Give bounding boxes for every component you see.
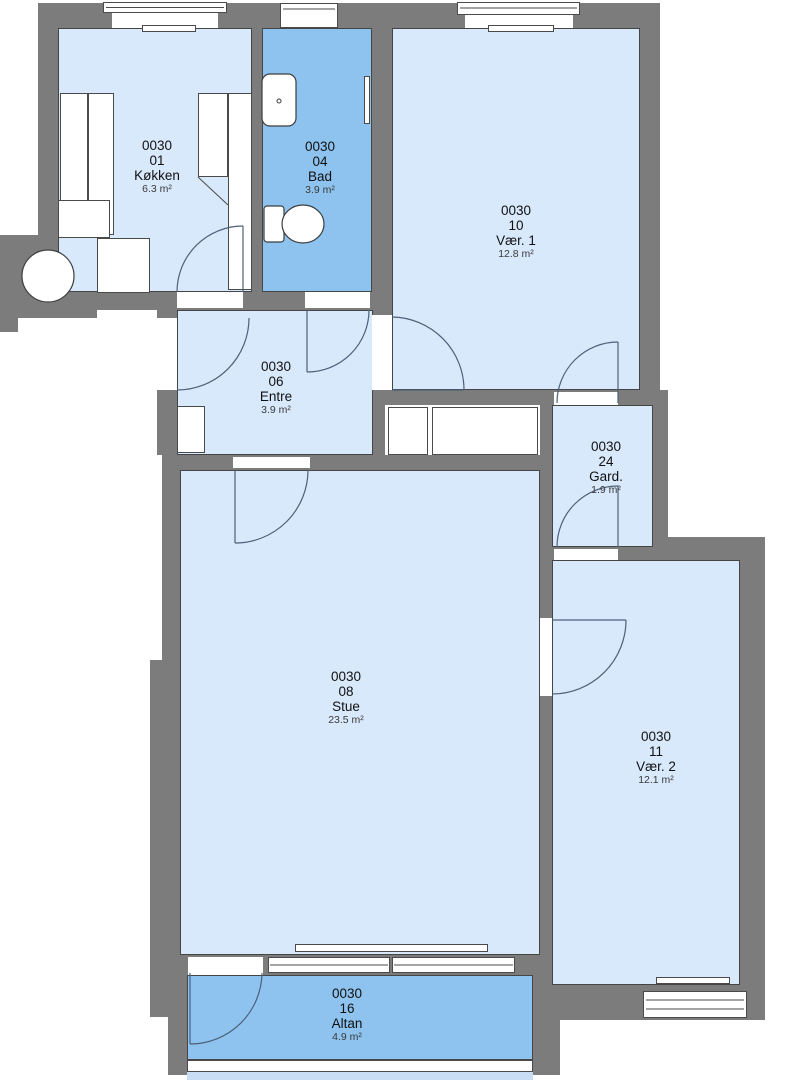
room-area: 23.5 m² — [328, 715, 364, 727]
room-code: 0030 — [496, 203, 536, 218]
closet — [432, 407, 538, 455]
mirror-bad — [364, 76, 370, 124]
room-number: 01 — [134, 153, 180, 168]
room-code: 0030 — [589, 439, 623, 454]
wall — [373, 400, 385, 458]
room-code: 0030 — [332, 986, 363, 1001]
door-opening-gard-top — [554, 392, 618, 405]
room-name: Entre — [260, 389, 292, 404]
room-code: 0030 — [328, 669, 364, 684]
door-opening-vaer1 — [372, 315, 392, 390]
room-label-stue: 0030 08 Stue 23.5 m² — [328, 669, 364, 727]
door-opening-vaer2 — [540, 618, 552, 696]
balcony-railing — [187, 1060, 533, 1072]
wall — [740, 537, 765, 1020]
room-label-vaer2: 0030 11 Vær. 2 12.1 m² — [636, 729, 676, 787]
room-label-entre: 0030 06 Entre 3.9 m² — [260, 359, 292, 417]
room-number: 24 — [589, 454, 623, 469]
room-number: 04 — [305, 154, 335, 169]
room-code: 0030 — [260, 359, 292, 374]
door-opening-bad — [305, 292, 370, 308]
room-area: 6.3 m² — [134, 184, 180, 196]
radiator-koekken — [142, 25, 196, 32]
radiator-stue — [295, 944, 488, 952]
room-name: Bad — [305, 169, 335, 184]
room-name: Altan — [332, 1016, 363, 1031]
room-name: Stue — [328, 699, 364, 714]
room-name: Gard. — [589, 469, 623, 484]
wall — [162, 455, 552, 470]
window-vaer2 — [643, 991, 747, 1018]
door-opening-entrance — [157, 318, 177, 390]
balcony-edge — [187, 1072, 533, 1080]
room-name: Vær. 1 — [496, 233, 536, 248]
floor-plan: 0030 01 Køkken 6.3 m² 0030 04 Bad 3.9 m²… — [0, 0, 800, 1080]
room-number: 08 — [328, 684, 364, 699]
window-stue-right — [392, 957, 515, 973]
room-area: 12.8 m² — [496, 249, 536, 261]
wall — [252, 28, 262, 292]
door-opening-altan — [188, 957, 263, 975]
window-stue-left — [268, 957, 390, 973]
room-label-gard: 0030 24 Gard. 1.9 m² — [589, 439, 623, 497]
wall — [392, 390, 660, 405]
room-label-bad: 0030 04 Bad 3.9 m² — [305, 139, 335, 197]
window-vaer1 — [457, 2, 580, 15]
wall — [162, 470, 180, 670]
closet — [388, 407, 428, 455]
room-number: 11 — [636, 744, 676, 759]
wall — [168, 1017, 187, 1075]
room-name: Køkken — [134, 168, 180, 183]
wall — [640, 28, 660, 405]
room-area: 3.9 m² — [260, 405, 292, 417]
room-area: 4.9 m² — [332, 1032, 363, 1044]
room-name: Vær. 2 — [636, 759, 676, 774]
radiator-vaer2 — [656, 977, 730, 984]
room-label-vaer1: 0030 10 Vær. 1 12.8 m² — [496, 203, 536, 261]
room-label-koekken: 0030 01 Køkken 6.3 m² — [134, 138, 180, 196]
room-area: 3.9 m² — [305, 185, 335, 197]
room-number: 10 — [496, 218, 536, 233]
room-code: 0030 — [305, 139, 335, 154]
kitchen-counter — [58, 200, 110, 238]
door-opening-gard-bottom — [554, 549, 618, 560]
room-area: 1.9 m² — [589, 485, 623, 497]
room-code: 0030 — [134, 138, 180, 153]
wall — [38, 3, 60, 240]
kitchen-counter — [97, 238, 150, 293]
radiator-vaer1 — [488, 25, 554, 32]
door-opening-koekken — [177, 292, 243, 308]
room-code: 0030 — [636, 729, 676, 744]
room-number: 06 — [260, 374, 292, 389]
room-label-altan: 0030 16 Altan 4.9 m² — [332, 986, 363, 1044]
vent-shaft-bad — [280, 3, 338, 28]
room-area: 12.1 m² — [636, 775, 676, 787]
kitchen-counter — [228, 93, 252, 290]
kitchen-counter — [198, 93, 228, 177]
room-number: 16 — [332, 1001, 363, 1016]
wall — [653, 390, 668, 560]
window-koekken — [103, 2, 227, 13]
closet — [177, 406, 205, 453]
wall — [0, 318, 18, 332]
door-opening-stue — [233, 457, 310, 468]
